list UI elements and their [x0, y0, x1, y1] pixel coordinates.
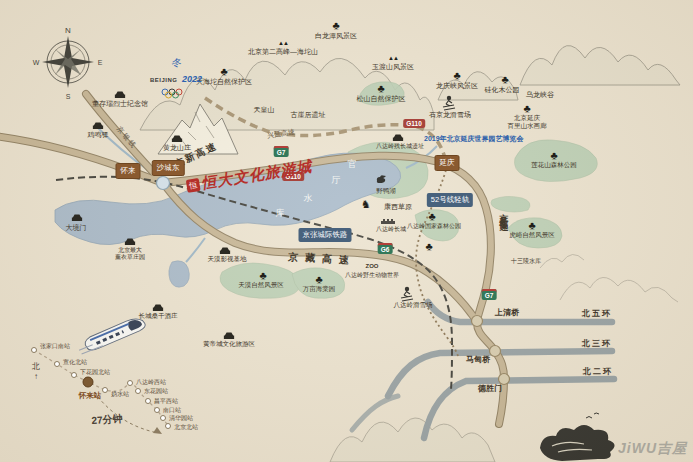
map-label: 大海坨自然保护区 — [196, 78, 252, 85]
station-label: 北京北站 — [174, 424, 198, 430]
map-label: 天皇山 — [254, 106, 275, 113]
trip-time-label: 27分钟 — [91, 412, 123, 428]
station-dot — [54, 361, 60, 367]
olympic-year: 2022 — [182, 74, 202, 84]
bldg-icon — [393, 134, 404, 141]
map-label: 北五环 — [582, 310, 612, 318]
map-label: 松山自然保护区 — [357, 95, 406, 102]
tree-icon: ♣ — [259, 270, 266, 281]
station-label: 张家口南站 — [40, 343, 70, 349]
map-label: 兴延高速 — [267, 128, 296, 139]
tree-icon: ♣ — [550, 150, 557, 161]
map-label: 乌龙峡谷 — [526, 91, 554, 98]
map-label: ZOO — [366, 263, 379, 269]
map-label: 百里山水画廊 — [508, 123, 547, 130]
tree-icon: ♣ — [220, 66, 227, 77]
station-dot — [127, 380, 133, 386]
tree-icon: ♣ — [332, 20, 339, 31]
bldg-icon — [220, 247, 231, 254]
map-label: 莲花山森林公园 — [531, 162, 577, 169]
lake-name-char: 库 — [276, 207, 285, 220]
tree-icon: ♣ — [315, 274, 322, 285]
station-label: 昌平西站 — [154, 398, 178, 404]
north-indicator: 北 ↑ — [32, 362, 40, 381]
bldg-icon — [224, 332, 235, 339]
road-sign-g110: G110 — [403, 119, 425, 128]
beijing-2022-logo: 冬 BEIJING 2022 — [148, 58, 204, 86]
logo-text: 恒大文化旅游城 — [200, 157, 314, 193]
map-label: 董存瑞烈士纪念馆 — [92, 100, 148, 107]
road-sign-g6: G6 — [378, 243, 393, 254]
bldg-icon — [153, 304, 164, 311]
map-label: 鸡鸣驿 — [88, 131, 109, 138]
bldg-icon — [125, 238, 136, 245]
bldg-icon — [93, 122, 104, 129]
station-label: 怀来站 — [79, 392, 102, 400]
tree-icon: ♣ — [501, 74, 508, 85]
map-label: 京银线 — [116, 125, 139, 150]
map-label: 长城桑干酒庄 — [139, 313, 178, 320]
tree-icon: ♣ — [425, 241, 432, 252]
station-label: 下花园北站 — [80, 369, 110, 375]
rail-label: 京张城际铁路 — [299, 228, 352, 242]
map-label: 黄龙山庄 — [163, 144, 191, 151]
map-label: 石京龙滑雪场 — [429, 111, 471, 118]
evergrande-logo: 恒 恒大文化旅游城 — [185, 157, 313, 196]
map-label: 康西草原 — [384, 203, 412, 210]
road-sign-g7: G7 — [274, 146, 289, 157]
bldg-icon — [72, 214, 83, 221]
map-label: 硅化木公园 — [485, 86, 520, 93]
map-label: 北京延庆 — [514, 115, 540, 122]
horse-icon: ♞ — [361, 199, 371, 210]
map-label: 黄帝城文化旅游区 — [203, 341, 255, 348]
lake-name-char: 官 — [348, 158, 357, 171]
north-label: 北 — [32, 362, 40, 371]
map-label: 天漠自然风景区 — [238, 282, 284, 289]
map-label: 薰衣草庄园 — [115, 254, 145, 260]
olympic-name: BEIJING — [150, 77, 178, 83]
bldg-icon — [172, 135, 183, 142]
rail-label: 52号线轻轨 — [427, 193, 473, 207]
station-dot — [71, 372, 77, 378]
map-label: 大境门 — [66, 224, 87, 231]
mounts-icon: ▲▲ — [388, 55, 398, 61]
map-label: 八达岭国家森林公园 — [407, 223, 461, 229]
map-label: 北京最大 — [118, 247, 142, 253]
logo-seal-icon: 恒 — [186, 178, 201, 193]
town-badge: 怀来 — [116, 163, 141, 179]
station-label: 八达岭西站 — [136, 379, 166, 385]
station-label: 清华园站 — [169, 415, 193, 421]
north-arrow-icon: ↑ — [34, 372, 38, 381]
map-label: 野鸭湖 — [376, 188, 396, 195]
map-label: 八达岭残长城遗址 — [376, 143, 424, 149]
station-label: 南口站 — [163, 407, 181, 413]
map-label: 马甸桥 — [466, 356, 490, 364]
mounts-icon: ▲▲ — [278, 40, 288, 46]
station-label: 东花园站 — [144, 388, 168, 394]
map-label: 京藏高速 — [288, 252, 356, 266]
map-label: 上清桥 — [495, 309, 519, 317]
town-badge: 延庆 — [435, 155, 460, 171]
station-dot — [160, 415, 166, 421]
map-label: 德胜门 — [478, 385, 502, 393]
map-label: 八达岭滑雪场 — [394, 302, 433, 309]
labels-layer: 恒 恒大文化旅游城 2019年北京延庆世界园艺博览会 冬 BEIJING 202… — [0, 0, 693, 462]
map-stage: N S W E 恒 恒大 — [0, 0, 693, 462]
map-label: 北三环 — [582, 340, 612, 348]
map-label: 天漠影视基地 — [208, 256, 247, 263]
station-label: 妫水站 — [111, 391, 129, 397]
map-label: 八达岭野生动物世界 — [345, 272, 399, 278]
map-label: 北二环 — [583, 368, 613, 376]
lake-name-char: 厅 — [332, 174, 341, 187]
station-dot — [31, 347, 37, 353]
station-dot — [83, 377, 94, 388]
map-label: 京新高速 — [498, 206, 507, 218]
station-dot — [145, 398, 151, 404]
tree-icon: ♣ — [428, 211, 435, 222]
station-dot — [135, 388, 141, 394]
map-label: 白龙潭风景区 — [315, 32, 357, 39]
station-dot — [165, 423, 171, 429]
map-label: 十三陵水库 — [511, 258, 541, 264]
bldg-icon — [115, 91, 126, 98]
expo-2019-label: 2019年北京延庆世界园艺博览会 — [424, 134, 524, 144]
tree-icon: ♣ — [523, 103, 530, 114]
tree-icon: ♣ — [377, 83, 384, 94]
lake-name-char: 水 — [304, 192, 313, 205]
road-sign-g7: G7 — [482, 289, 497, 300]
station-label: 宣化北站 — [63, 359, 87, 365]
map-label: 虎峪自然风景区 — [509, 232, 555, 239]
map-label: 八达岭长城 — [376, 226, 406, 232]
town-badge: 沙城东 — [152, 160, 185, 176]
map-label: 万亩海棠园 — [303, 286, 336, 293]
station-dot — [154, 407, 160, 413]
station-dot — [102, 387, 108, 393]
jiwu-watermark: JiWU吉屋 — [618, 440, 687, 458]
tree-icon: ♣ — [453, 70, 460, 81]
map-label: 北京第二高峰—海坨山 — [248, 48, 318, 55]
map-label: 古崖居遗址 — [291, 111, 326, 118]
olympic-emblem-icon: 冬 — [148, 58, 204, 68]
map-label: 龙庆峡风景区 — [436, 82, 478, 89]
tree-icon: ♣ — [528, 220, 535, 231]
map-label: 玉渡山风景区 — [372, 63, 414, 70]
